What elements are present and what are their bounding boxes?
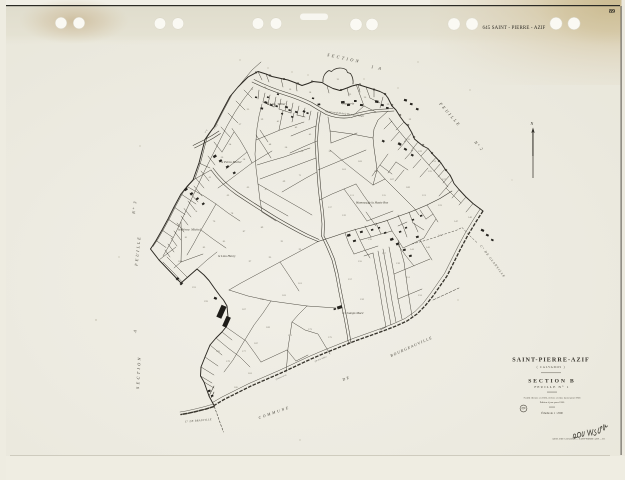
svg-text:le Champs Macé: le Champs Macé	[342, 311, 364, 315]
svg-text:SAINT-PIERRE-AZIF: SAINT-PIERRE-AZIF	[512, 358, 590, 364]
svg-text:Édition à jour pour 1960: Édition à jour pour 1960	[540, 401, 565, 404]
svg-text:FEUILLE N° 1: FEUILLE N° 1	[534, 385, 569, 389]
svg-text:Feuille dressée en 1825, révis: Feuille dressée en 1825, révisée et mise…	[524, 397, 582, 400]
svg-text:Pannerie: Pannerie	[342, 102, 355, 106]
svg-text:89: 89	[609, 9, 615, 15]
svg-text:le Pérou Michel: le Pérou Michel	[178, 228, 201, 232]
svg-text:N: N	[530, 121, 534, 126]
svg-text:le Pérou Michel: le Pérou Michel	[221, 160, 242, 164]
svg-text:le Lieu Tellier: le Lieu Tellier	[267, 102, 286, 106]
svg-text:le Lieu Henry: le Lieu Henry	[218, 254, 236, 258]
svg-text:ARCH. DEP. CALVADOS — SAINT-PI: ARCH. DEP. CALVADOS — SAINT-PIERRE-AZIF …	[552, 438, 605, 441]
svg-text:( CALVADOS ): ( CALVADOS )	[537, 365, 566, 369]
svg-text:SECTION B: SECTION B	[528, 379, 575, 385]
svg-text:Hameau de la Haute Rue: Hameau de la Haute Rue	[355, 201, 389, 205]
svg-text:645 SAINT - PIERRE - AZIF: 645 SAINT - PIERRE - AZIF	[483, 26, 546, 31]
svg-text:Échelle de 1 : 2500: Échelle de 1 : 2500	[541, 412, 563, 415]
